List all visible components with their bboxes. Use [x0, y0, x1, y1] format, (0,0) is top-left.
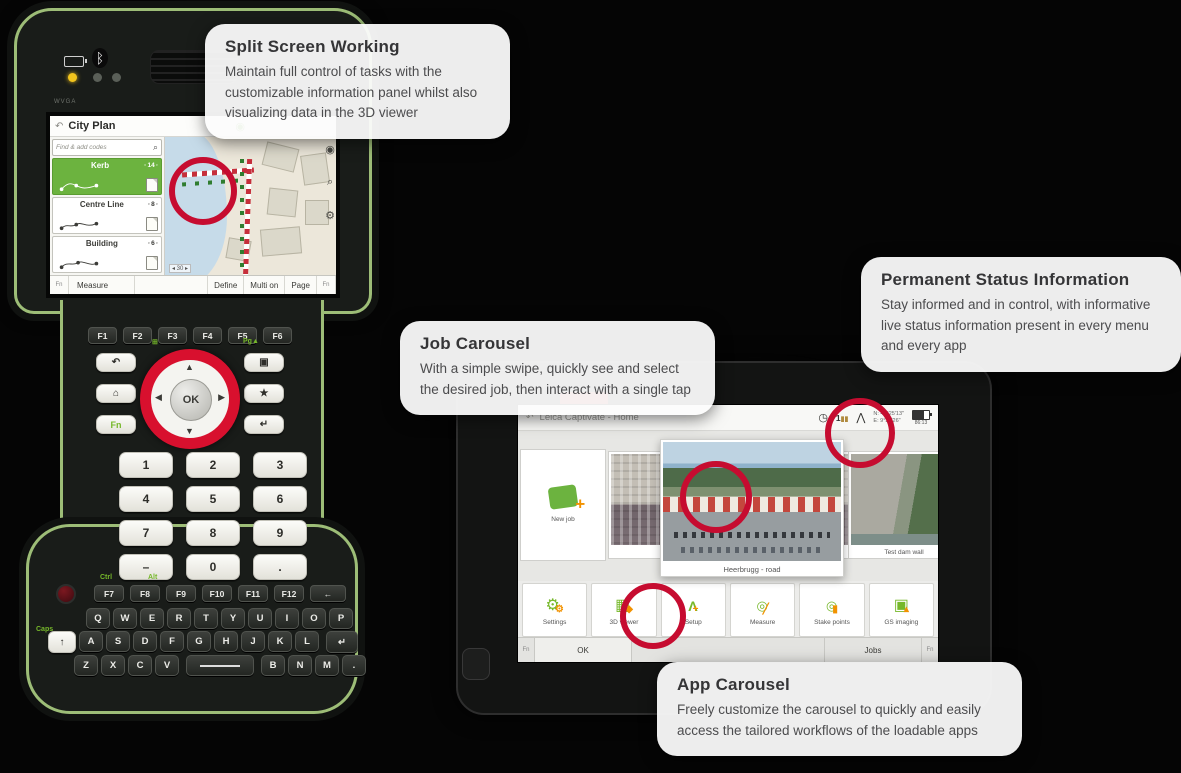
callout-body: Freely customize the carousel to quickly…	[677, 700, 1002, 741]
highlight-circle-app-carousel	[620, 583, 686, 649]
codes-panel: Find & add codes ⌕ Kerb ◦14◦ Centre Line…	[50, 137, 165, 275]
key-f11[interactable]: F11	[238, 585, 268, 602]
layer-item-kerb[interactable]: Kerb ◦14◦	[52, 158, 162, 195]
key-f10[interactable]: F10	[202, 585, 232, 602]
qwerty-row-1: Q W E R T Y U I O P	[86, 608, 353, 629]
bluetooth-icon: ᛒ	[92, 48, 108, 68]
key-z[interactable]: Z	[74, 655, 98, 676]
callout-title: Job Carousel	[420, 334, 695, 354]
key-k[interactable]: K	[268, 631, 292, 652]
key-f[interactable]: F	[160, 631, 184, 652]
softkey-multi[interactable]: Multi on	[244, 276, 285, 294]
map-scale: ◂ 30 ▸	[169, 264, 191, 273]
codes-search-input[interactable]: Find & add codes ⌕	[52, 139, 162, 156]
softkey-spacer	[135, 276, 209, 294]
enter-key-kb[interactable]: ↵	[326, 631, 358, 653]
map-building	[266, 188, 298, 218]
qwerty-row-3: Z X C V B N M .	[74, 655, 366, 676]
key-m[interactable]: M	[315, 655, 339, 676]
key-p[interactable]: P	[329, 608, 353, 629]
key-q[interactable]: Q	[86, 608, 110, 629]
page: ᛒ WVGA ↶ City Plan ◉ Find & add codes ⌕ …	[0, 0, 1181, 773]
key-g[interactable]: G	[187, 631, 211, 652]
app-label: Settings	[543, 619, 567, 626]
key-o[interactable]: O	[302, 608, 326, 629]
key-l[interactable]: L	[295, 631, 319, 652]
key-v[interactable]: V	[155, 655, 179, 676]
home-key[interactable]: ⌂	[96, 384, 136, 403]
key-f6[interactable]: F6	[263, 327, 292, 344]
win-key-hint: ⊞	[152, 338, 158, 346]
callout-job-carousel: Job Carousel With a simple swipe, quickl…	[400, 321, 715, 415]
fkey-row-bottom: F7 F8 F9 F10 F11 F12 ←	[94, 585, 346, 602]
shift-key[interactable]: ↑	[48, 631, 76, 653]
app-carousel: ⚙⚙ Settings ▦◆ 3D viewer Λ+ Setup ◎╱ Mea…	[522, 583, 934, 637]
job-label: Test dam wall	[849, 547, 939, 558]
pgup-hint: Pg▲	[243, 338, 259, 345]
key-period[interactable]: .	[342, 655, 366, 676]
settings-icon: ⚙⚙	[546, 595, 564, 617]
app-card-stake-points[interactable]: ◎▮ Stake points	[799, 583, 864, 637]
ok-button[interactable]: OK	[170, 379, 212, 421]
app-label: GS imaging	[884, 619, 918, 626]
softkey-toolbar: Fn Measure Define Multi on Page Fn	[50, 275, 336, 294]
battery-indicator-icon	[64, 56, 84, 67]
parked-cars	[681, 547, 823, 553]
imaging-icon: ▣▴	[894, 595, 909, 617]
backspace-key[interactable]: ←	[310, 585, 346, 602]
key-1[interactable]: 1	[119, 452, 173, 478]
key-4[interactable]: 4	[119, 486, 173, 512]
key-f3[interactable]: F3	[158, 327, 187, 344]
key-y[interactable]: Y	[221, 608, 245, 629]
callout-body: Stay informed and in control, with infor…	[881, 295, 1161, 357]
callout-body: Maintain full control of tasks with the …	[225, 62, 490, 124]
key-t[interactable]: T	[194, 608, 218, 629]
tablet-connector	[462, 648, 490, 680]
status-led	[93, 73, 102, 82]
app-card-measure[interactable]: ◎╱ Measure	[730, 583, 795, 637]
dpad[interactable]: ▲ ▼ ◀ ▶ OK	[140, 349, 240, 449]
staked-points-vertical	[240, 159, 244, 275]
key-w[interactable]: W	[113, 608, 137, 629]
parked-cars	[674, 532, 831, 538]
key-f2[interactable]: F2	[123, 327, 152, 344]
layer-count: ◦14◦	[144, 162, 158, 169]
softkey-measure[interactable]: Measure	[69, 276, 135, 294]
gear-icon[interactable]: ⚙	[325, 209, 335, 222]
zoom-icon[interactable]: ⌕	[325, 176, 335, 189]
dpad-right-icon[interactable]: ▶	[218, 392, 225, 403]
callout-body: With a simple swipe, quickly see and sel…	[420, 359, 695, 400]
power-button[interactable]	[56, 584, 76, 604]
dam-water	[851, 534, 939, 545]
app-label: Measure	[750, 619, 775, 626]
key-9[interactable]: 9	[253, 520, 307, 546]
layer-name: Kerb	[56, 161, 144, 170]
app-title: City Plan	[68, 120, 115, 132]
layer-name: Building	[56, 239, 148, 248]
key-2[interactable]: 2	[186, 452, 240, 478]
layer-item-building[interactable]: Building ◦6◦	[52, 236, 162, 273]
bezel-label: WVGA	[54, 99, 76, 105]
back-key[interactable]: ↶	[96, 353, 136, 372]
notes-icon	[146, 256, 158, 270]
key-f1[interactable]: F1	[88, 327, 117, 344]
screenshot-key[interactable]: ▣	[244, 353, 284, 372]
highlight-circle-job-carousel	[680, 461, 752, 533]
staked-line-vertical	[243, 159, 252, 275]
layer-item-centre-line[interactable]: Centre Line ◦8◦	[52, 197, 162, 234]
alt-hint: Alt	[148, 574, 157, 581]
battery-icon	[912, 410, 930, 420]
fn-key[interactable]: Fn	[96, 415, 136, 434]
key-b[interactable]: B	[261, 655, 285, 676]
tablet-softkey-bar: Fn OK Jobs Fn	[518, 637, 938, 662]
status-led	[112, 73, 121, 82]
map-building	[260, 226, 302, 256]
key-6[interactable]: 6	[253, 486, 307, 512]
polyline-glyph	[56, 181, 102, 192]
key-r[interactable]: R	[167, 608, 191, 629]
fkey-row-top: F1 F2 F3 F4 F5 F6	[88, 327, 292, 344]
softkey-fn-right[interactable]: Fn	[922, 638, 938, 662]
polyline-glyph	[56, 220, 102, 231]
key-dot[interactable]: .	[253, 554, 307, 580]
key-f9[interactable]: F9	[166, 585, 196, 602]
key-a[interactable]: A	[79, 631, 103, 652]
key-f8[interactable]: F8	[130, 585, 160, 602]
dpad-up-icon[interactable]: ▲	[185, 362, 194, 372]
key-x[interactable]: X	[101, 655, 125, 676]
key-3[interactable]: 3	[253, 452, 307, 478]
app-label: Stake points	[814, 619, 850, 626]
layers-icon[interactable]: ◉	[325, 143, 335, 156]
notes-icon	[146, 178, 158, 192]
highlight-circle-split-screen	[169, 157, 237, 225]
map-building	[262, 142, 300, 173]
softkey-fn-left[interactable]: Fn	[518, 638, 534, 662]
highlight-circle-status	[825, 398, 895, 468]
key-d[interactable]: D	[133, 631, 157, 652]
softkey-fn-right[interactable]: Fn	[317, 276, 336, 294]
dpad-down-icon[interactable]: ▼	[185, 426, 194, 436]
dpad-left-icon[interactable]: ◀	[155, 392, 162, 403]
key-n[interactable]: N	[288, 655, 312, 676]
new-job-icon	[548, 484, 579, 510]
tripod-icon: Λ+	[688, 595, 698, 617]
key-f12[interactable]: F12	[274, 585, 304, 602]
key-8[interactable]: 8	[186, 520, 240, 546]
enter-key[interactable]: ↵	[244, 415, 284, 434]
softkey-fn-left[interactable]: Fn	[50, 276, 69, 294]
key-0[interactable]: 0	[186, 554, 240, 580]
app-card-settings[interactable]: ⚙⚙ Settings	[522, 583, 587, 637]
key-7[interactable]: 7	[119, 520, 173, 546]
job-label: Heerbrugg - road	[661, 563, 843, 576]
stake-icon: ◎▮	[826, 595, 838, 617]
callout-app-carousel: App Carousel Freely customize the carous…	[657, 662, 1022, 756]
callout-title: App Carousel	[677, 675, 1002, 695]
power-led	[68, 73, 77, 82]
key-s[interactable]: S	[106, 631, 130, 652]
softkey-ok[interactable]: OK	[534, 638, 632, 662]
polyline-glyph	[56, 259, 102, 270]
callout-title: Permanent Status Information	[881, 270, 1161, 290]
callout-split-screen: Split Screen Working Maintain full contr…	[205, 24, 510, 139]
measure-icon: ◎╱	[756, 595, 768, 617]
callout-status-info: Permanent Status Information Stay inform…	[861, 257, 1181, 372]
callout-title: Split Screen Working	[225, 37, 490, 57]
layer-count: ◦6◦	[148, 240, 158, 247]
key-e[interactable]: E	[140, 608, 164, 629]
numeric-keypad: 1 2 3 4 5 6 7 8 9 – 0 .	[119, 452, 307, 580]
ctrl-hint: Ctrl	[100, 574, 112, 581]
key-minus[interactable]: –	[119, 554, 173, 580]
layer-count: ◦8◦	[148, 201, 158, 208]
search-placeholder: Find & add codes	[56, 144, 153, 151]
key-i[interactable]: I	[275, 608, 299, 629]
key-f4[interactable]: F4	[193, 327, 222, 344]
softkey-page[interactable]: Page	[285, 276, 317, 294]
layer-name: Centre Line	[56, 200, 148, 209]
key-h[interactable]: H	[214, 631, 238, 652]
key-u[interactable]: U	[248, 608, 272, 629]
app-card-gs-imaging[interactable]: ▣▴ GS imaging	[869, 583, 934, 637]
job-card-new[interactable]: New job	[520, 449, 606, 561]
key-j[interactable]: J	[241, 631, 265, 652]
space-key[interactable]	[186, 655, 254, 676]
favorites-key[interactable]: ★	[244, 384, 284, 403]
notes-icon	[146, 217, 158, 231]
job-label: New job	[551, 514, 574, 525]
key-f7[interactable]: F7	[94, 585, 124, 602]
back-icon[interactable]: ↶	[55, 121, 63, 132]
softkey-define[interactable]: Define	[208, 276, 244, 294]
key-5[interactable]: 5	[186, 486, 240, 512]
app-label: Setup	[685, 619, 702, 626]
key-c[interactable]: C	[128, 655, 152, 676]
search-icon: ⌕	[153, 142, 158, 153]
softkey-jobs[interactable]: Jobs	[824, 638, 922, 662]
qwerty-row-2: ↑ A S D F G H J K L ↵	[48, 631, 358, 653]
battery-status: 86:13	[912, 410, 930, 426]
